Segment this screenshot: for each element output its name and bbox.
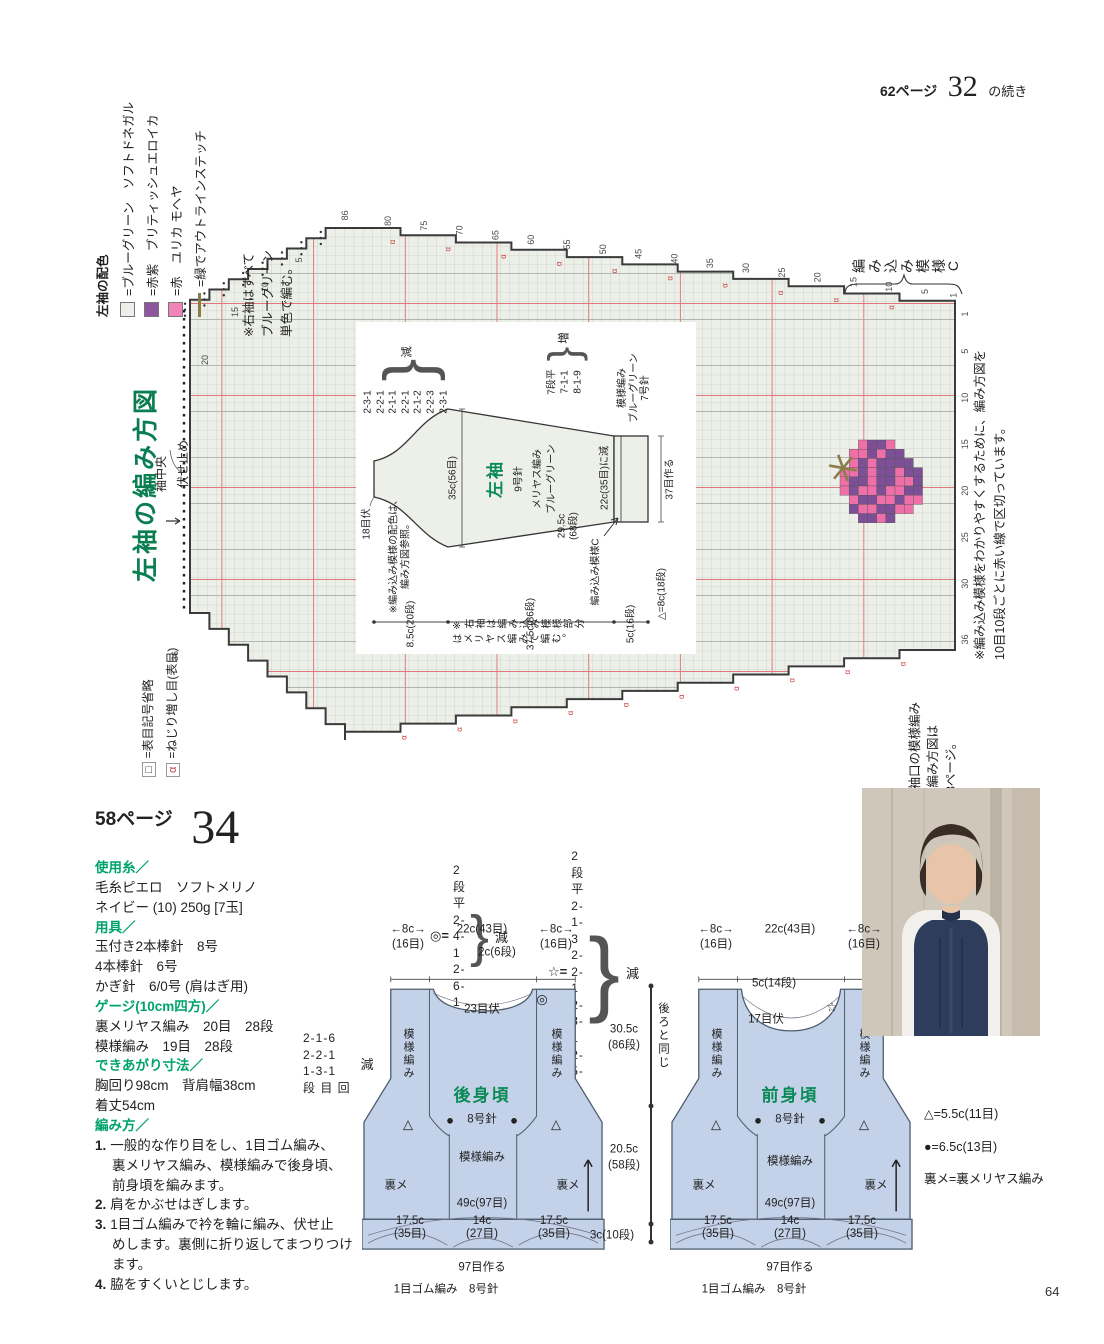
- grid-number: 20: [200, 355, 210, 365]
- piece-label: 17.5c (35目): [394, 1215, 426, 1241]
- legend-swatch: [198, 293, 201, 317]
- yarn-color: ブルーグリーン: [546, 444, 558, 514]
- grid-number: 20: [813, 272, 823, 282]
- motif-cell: [868, 504, 877, 513]
- length-dimension: (86段): [608, 1039, 640, 1052]
- motif-cell: [913, 468, 922, 477]
- piece-label: 裏メ: [693, 1179, 716, 1192]
- stitch-legend-item: α=ねじり増し目(表目): [160, 582, 184, 777]
- motif-cell: [868, 514, 877, 523]
- twisted-increase-mark: α: [832, 297, 841, 302]
- info-line: 裏メリヤス編み、模様編みで後身頃、: [95, 1156, 350, 1176]
- twisted-increase-mark: α: [677, 694, 686, 699]
- piece-label: 8号針: [467, 1113, 496, 1126]
- brace: }: [369, 359, 447, 382]
- motif-cell: [868, 468, 877, 477]
- piece-label: 前身頃: [762, 1086, 819, 1106]
- motif-cell: [913, 477, 922, 486]
- piece-label: 17.5c (35目): [538, 1215, 570, 1241]
- legend-swatch: [120, 302, 135, 317]
- motif-cell: [840, 486, 849, 495]
- top-dimension: 22c(43目): [765, 923, 816, 936]
- grid-number: 35: [705, 258, 715, 268]
- sleeve-cap-decrease: 2-3-1: [438, 390, 450, 413]
- bind-off-count: 18目伏: [361, 508, 373, 539]
- piece-label: 49c(97目): [457, 1197, 508, 1210]
- piece-label: 8号針: [775, 1113, 804, 1126]
- twisted-increase-mark: α: [455, 727, 464, 732]
- twisted-increase-mark: α: [621, 702, 630, 707]
- piece-label: 17目伏: [748, 1013, 784, 1026]
- motif-cell: [868, 486, 877, 495]
- top-dimension: ←8c→: [698, 923, 733, 936]
- motif-cell: [877, 440, 886, 449]
- top-dimension: 2c(6段): [478, 946, 516, 959]
- motif-cell: [858, 495, 867, 504]
- bind-off-label: 伏せ止め: [174, 388, 194, 488]
- piece-label: ●: [754, 1114, 762, 1129]
- info-line: 1.一般的な作り目をし、1目ゴム編み、: [95, 1136, 350, 1156]
- panel-label: 模様編み: [708, 1028, 724, 1118]
- grid-number: 25: [960, 532, 970, 542]
- motif-cell: [895, 468, 904, 477]
- motif-cell: [895, 486, 904, 495]
- piece-label: 1目ゴム編み 8号針: [702, 1283, 807, 1296]
- twisted-increase-mark: α: [499, 254, 508, 259]
- motif-cell: [895, 449, 904, 458]
- panel-label: 模様編み: [400, 1028, 416, 1118]
- pattern-heading: 58ページ 34: [95, 800, 239, 855]
- top-dimension: ←8c→: [846, 923, 881, 936]
- note-colors: ※編み込み模様の配色は、 編み方図参照。: [389, 495, 412, 613]
- sleeve-cap-decrease: 2-1-2: [413, 390, 425, 413]
- motif-cell: [913, 486, 922, 495]
- info-line: 着丈54cm: [95, 1096, 350, 1116]
- grid-number: 15: [230, 307, 240, 317]
- legend-item: =赤紫 ブリティッシュエロイカ: [139, 72, 163, 317]
- piece-label: 裏メ: [865, 1179, 888, 1192]
- increase-label: 増: [558, 332, 571, 344]
- twisted-increase-mark: α: [566, 710, 575, 715]
- grid-number: 10: [960, 393, 970, 403]
- sleeve-schematic-box: 18目伏2-3-12-2-12-1-12-2-12-1-22-2-32-3-1}…: [356, 322, 696, 654]
- info-line: めします。裏側に折り返してまつりつけ: [95, 1235, 350, 1255]
- motif-cell: [858, 440, 867, 449]
- piece-label: ☆: [826, 1001, 838, 1016]
- motif-cell: [886, 504, 895, 513]
- needle-size: 9号針: [513, 466, 525, 492]
- stitch-type: メリヤス編み: [532, 449, 544, 509]
- piece-label: 5c(14段): [752, 977, 796, 990]
- motif-cell: [849, 504, 858, 513]
- sleeve-schematic-rotated: 18目伏2-3-12-2-12-1-12-2-12-1-22-2-32-3-1}…: [356, 322, 696, 654]
- info-line: 4本棒針 6号: [95, 957, 350, 977]
- top-dimension: (16目): [848, 938, 880, 951]
- info-line: 用具／: [95, 918, 350, 938]
- piece-label: 97目作る: [766, 1261, 813, 1274]
- info-line: かぎ針 6/0号 (肩はぎ用): [95, 977, 350, 997]
- continuation-number: 32: [948, 70, 978, 103]
- motif-cell: [895, 458, 904, 467]
- info-line: 2.肩をかぶせはぎします。: [95, 1195, 350, 1215]
- sleeve-cap-decrease: 2-2-3: [425, 390, 437, 413]
- pattern-page-ref: 58ページ: [95, 809, 173, 830]
- twisted-increase-mark: α: [400, 735, 409, 740]
- note-right-sleeve: ※右袖はすべて ブルーグリーン 単色で編む。: [240, 132, 306, 337]
- motif-cell: [904, 495, 913, 504]
- motif-cell: [895, 495, 904, 504]
- piece-label: 14c (27目): [466, 1215, 498, 1241]
- twisted-increase-mark: α: [843, 669, 852, 674]
- piece-label: △: [551, 1118, 561, 1133]
- motif-cell: [886, 468, 895, 477]
- piece-label: 17.5c (35目): [702, 1215, 734, 1241]
- top-dimension: ←8c→: [390, 923, 425, 936]
- piece-legend-line: 裏メ=裏メリヤス編み: [924, 1163, 1094, 1196]
- grid-number: 5: [920, 289, 930, 294]
- motif-cell: [868, 440, 877, 449]
- twisted-increase-mark: α: [721, 283, 730, 288]
- top-dimension: (16目): [700, 938, 732, 951]
- note-right-sleeve-stockinette: ※右袖は編み込み模様部分はメリヤス編みで編む。: [452, 618, 592, 652]
- motif-cell: [886, 449, 895, 458]
- panel-label: 模様編み: [856, 1028, 872, 1118]
- motif-cell: [877, 468, 886, 477]
- motif-cell: [858, 477, 867, 486]
- length-dimension: 3c(10段): [590, 1229, 634, 1242]
- info-line: ネイビー (10) 250g [7玉]: [95, 898, 350, 918]
- sleeve-cap-decrease: 2-1-1: [387, 390, 399, 413]
- grid-number: 15: [848, 277, 858, 287]
- color-legend: 左袖の配色 =ブルーグリーン ソフトドネガル=赤紫 ブリティッシュエロイカ=赤 …: [92, 72, 227, 317]
- legend-swatch: [144, 302, 159, 317]
- brace: }: [540, 347, 591, 362]
- pattern-c-label: 編み込み模様C: [845, 256, 965, 276]
- note-cuff: ※袖口の模様編み の編み方図は 63ページ。: [906, 642, 984, 800]
- back-piece-schematic: 23目伏◎模様編み模様編み後身頃8号針模様編み△△●●裏メ裏メ49c(97目)1…: [362, 970, 606, 1304]
- motif-cell: [895, 504, 904, 513]
- grid-number: 45: [634, 249, 644, 259]
- grid-number: 30: [960, 579, 970, 589]
- motif-cell: [913, 495, 922, 504]
- piece-label: ●: [510, 1114, 518, 1129]
- info-line: 3.1目ゴム編みで衿を輪に編み、伏せ止: [95, 1215, 350, 1235]
- length-dimension-line: [650, 986, 652, 1242]
- sleeve-schematic-labels: 18目伏2-3-12-2-12-1-12-2-12-1-22-2-32-3-1}…: [356, 322, 696, 654]
- grid-number: 86: [340, 210, 350, 220]
- motif-cell: [904, 477, 913, 486]
- sleeve-name: 左袖: [486, 460, 506, 498]
- triangle-dim: △=8c(18段): [656, 568, 668, 620]
- model-photo: [862, 788, 1040, 1036]
- grid-number: 5: [960, 349, 970, 354]
- motif-cell: [858, 468, 867, 477]
- motif-cell: [858, 449, 867, 458]
- piece-label: △: [711, 1118, 721, 1133]
- continuation-page: 62ページ: [880, 83, 937, 99]
- sleeve-increase: 7-1-1: [559, 370, 571, 393]
- grid-number: 50: [598, 244, 608, 254]
- twisted-increase-mark: α: [732, 686, 741, 691]
- piece-label: 裏メ: [557, 1179, 580, 1192]
- sleeve-increase: 7段平: [546, 369, 558, 395]
- grid-number: 75: [419, 221, 429, 231]
- info-line: 前身頃を編みます。: [95, 1176, 350, 1196]
- piece-label: 14c (27目): [774, 1215, 806, 1241]
- grid-number: 55: [562, 239, 572, 249]
- piece-label: ●: [446, 1114, 454, 1129]
- motif-cell: [877, 504, 886, 513]
- piece-legend: △=5.5c(11目)●=6.5c(13目)裏メ=裏メリヤス編み: [924, 1098, 1094, 1196]
- top-dimension: (16目): [540, 938, 572, 951]
- grid-number: 30: [741, 263, 751, 273]
- sleeve-center-label: 袖中央: [152, 428, 170, 492]
- piece-label: 1目ゴム編み 8号針: [394, 1283, 499, 1296]
- info-line: 編み方／: [95, 1116, 350, 1136]
- cuff-band-info: 模様編み ブルーグリーン 7号針: [617, 353, 652, 423]
- piece-label: 後身頃: [454, 1086, 511, 1106]
- twisted-increase-mark: α: [788, 678, 797, 683]
- upper-height: 29.5c (68段): [557, 512, 580, 540]
- panel-label: 模様編み: [548, 1028, 564, 1118]
- piece-label: 裏メ: [385, 1179, 408, 1192]
- top-width: 35c(56目): [447, 456, 459, 500]
- page-number: 64: [1045, 1284, 1059, 1299]
- motif-cell: [904, 458, 913, 467]
- grid-number: 15: [960, 439, 970, 449]
- piece-label: ●: [818, 1114, 826, 1129]
- motif-cell: [886, 458, 895, 467]
- piece-label: 模様編み: [767, 1155, 813, 1168]
- motif-cell: [877, 495, 886, 504]
- motif-cell: [858, 504, 867, 513]
- motif-cell: [849, 477, 858, 486]
- twisted-increase-mark: α: [443, 247, 452, 252]
- motif-cell: [904, 486, 913, 495]
- piece-legend-line: △=5.5c(11目): [924, 1098, 1094, 1131]
- twisted-increase-mark: α: [887, 305, 896, 310]
- motif-cell: [886, 486, 895, 495]
- info-line: 玉付き2本棒針 8号: [95, 937, 350, 957]
- grid-number: 60: [526, 235, 536, 245]
- pattern-c-ref: 編み込み模様C: [590, 538, 602, 605]
- cast-on-count: 37目作る: [664, 458, 676, 499]
- sleeve-cap-decrease: 2-3-1: [362, 390, 374, 413]
- stitch-legend: □=表目記号省略α=ねじり増し目(表目): [136, 582, 192, 777]
- legend-swatch: [168, 302, 183, 317]
- legend-item: =緑でアウトラインステッチ: [187, 72, 211, 317]
- info-line: ゲージ(10cm四方)／: [95, 997, 350, 1017]
- twisted-increase-mark: α: [665, 276, 674, 281]
- info-line: 使用糸／: [95, 858, 350, 878]
- continuation-suffix: の続き: [988, 84, 1027, 99]
- motif-cell: [868, 477, 877, 486]
- twisted-increase-mark: α: [610, 268, 619, 273]
- motif-cell: [886, 477, 895, 486]
- motif-cell: [868, 495, 877, 504]
- motif-cell: [877, 486, 886, 495]
- motif-cell: [877, 458, 886, 467]
- grid-number: 10: [884, 282, 894, 292]
- top-dimension: 22c(43目): [457, 923, 508, 936]
- motif-cell: [886, 514, 895, 523]
- sleeve-cap-decrease: 2-2-1: [400, 390, 412, 413]
- motif-cell: [868, 458, 877, 467]
- magazine-page: 62ページ 32 の続き: [0, 0, 1104, 1344]
- motif-cell: [877, 449, 886, 458]
- info-line: ます。: [95, 1255, 350, 1275]
- same-as-back-label: 後ろと同じ: [655, 1002, 671, 1122]
- continuation-ref: 62ページ 32 の続き: [880, 70, 1090, 104]
- back-piece-labels: 23目伏◎模様編み模様編み後身頃8号針模様編み△△●●裏メ裏メ49c(97目)1…: [362, 970, 606, 1304]
- twisted-increase-mark: α: [388, 239, 397, 244]
- motif-cell: [904, 504, 913, 513]
- piece-label: △: [403, 1118, 413, 1133]
- length-dimension: 30.5c: [610, 1023, 638, 1036]
- motif-cell: [858, 458, 867, 467]
- top-dimension: (16目): [392, 938, 424, 951]
- stitch-legend-item: □=表目記号省略: [136, 582, 160, 777]
- motif-cell: [849, 486, 858, 495]
- motif-cell: [877, 514, 886, 523]
- motif-cell: [868, 449, 877, 458]
- twisted-increase-mark: α: [776, 290, 785, 295]
- sleeve-increase: 8-1-9: [572, 370, 584, 393]
- legend-item: =赤 ユリカ モヘヤ: [163, 72, 187, 317]
- twisted-increase-mark: α: [510, 719, 519, 724]
- info-line: 4.脇をすくいとじします。: [95, 1275, 350, 1295]
- piece-label: 17.5c (35目): [846, 1215, 878, 1241]
- twisted-increase-mark: α: [554, 261, 563, 266]
- grid-number: 25: [777, 268, 787, 278]
- motif-cell: [849, 495, 858, 504]
- note-red-lines: ※編み込み模様をわかりやすくするために、編み方図を 10目10段ごとに赤い線で区…: [970, 292, 1048, 660]
- cuff-decrease: 22c(35目)に減: [599, 446, 611, 510]
- motif-cell: [904, 468, 913, 477]
- piece-label: △: [859, 1118, 869, 1133]
- grid-number: 40: [669, 254, 679, 264]
- decrease-label: 減: [401, 346, 414, 358]
- grid-number: 65: [490, 230, 500, 240]
- grid-number: 1: [960, 311, 970, 316]
- piece-legend-line: ●=6.5c(13目): [924, 1131, 1094, 1164]
- grid-number: 70: [455, 225, 465, 235]
- piece-label: 97目作る: [458, 1261, 505, 1274]
- sleeve-cap-decrease: 2-2-1: [375, 390, 387, 413]
- motif-cell: [886, 495, 895, 504]
- pattern-number: 34: [191, 801, 239, 854]
- piece-label: 23目伏: [464, 1003, 500, 1016]
- grid-number: 1: [949, 293, 959, 298]
- info-line: 毛糸ピエロ ソフトメリノ: [95, 878, 350, 898]
- motif-cell: [895, 477, 904, 486]
- top-dimension: ←8c→: [538, 923, 573, 936]
- motif-cell: [858, 514, 867, 523]
- motif-cell: [877, 477, 886, 486]
- grid-number: 80: [383, 216, 393, 226]
- grid-number: 20: [960, 486, 970, 496]
- cuff-height: 5c(16段): [625, 605, 637, 643]
- legend-item: =ブルーグリーン ソフトドネガル: [115, 72, 139, 317]
- piece-label: 模様編み: [459, 1151, 505, 1164]
- pattern-c-bracket: [845, 275, 962, 294]
- motif-cell: [858, 486, 867, 495]
- piece-label: ◎: [536, 993, 547, 1008]
- color-legend-title: 左袖の配色: [92, 72, 111, 317]
- piece-label: 49c(97目): [765, 1197, 816, 1210]
- length-dimension: 20.5c: [610, 1143, 638, 1156]
- length-dimension: (58段): [608, 1159, 640, 1172]
- motif-cell: [886, 440, 895, 449]
